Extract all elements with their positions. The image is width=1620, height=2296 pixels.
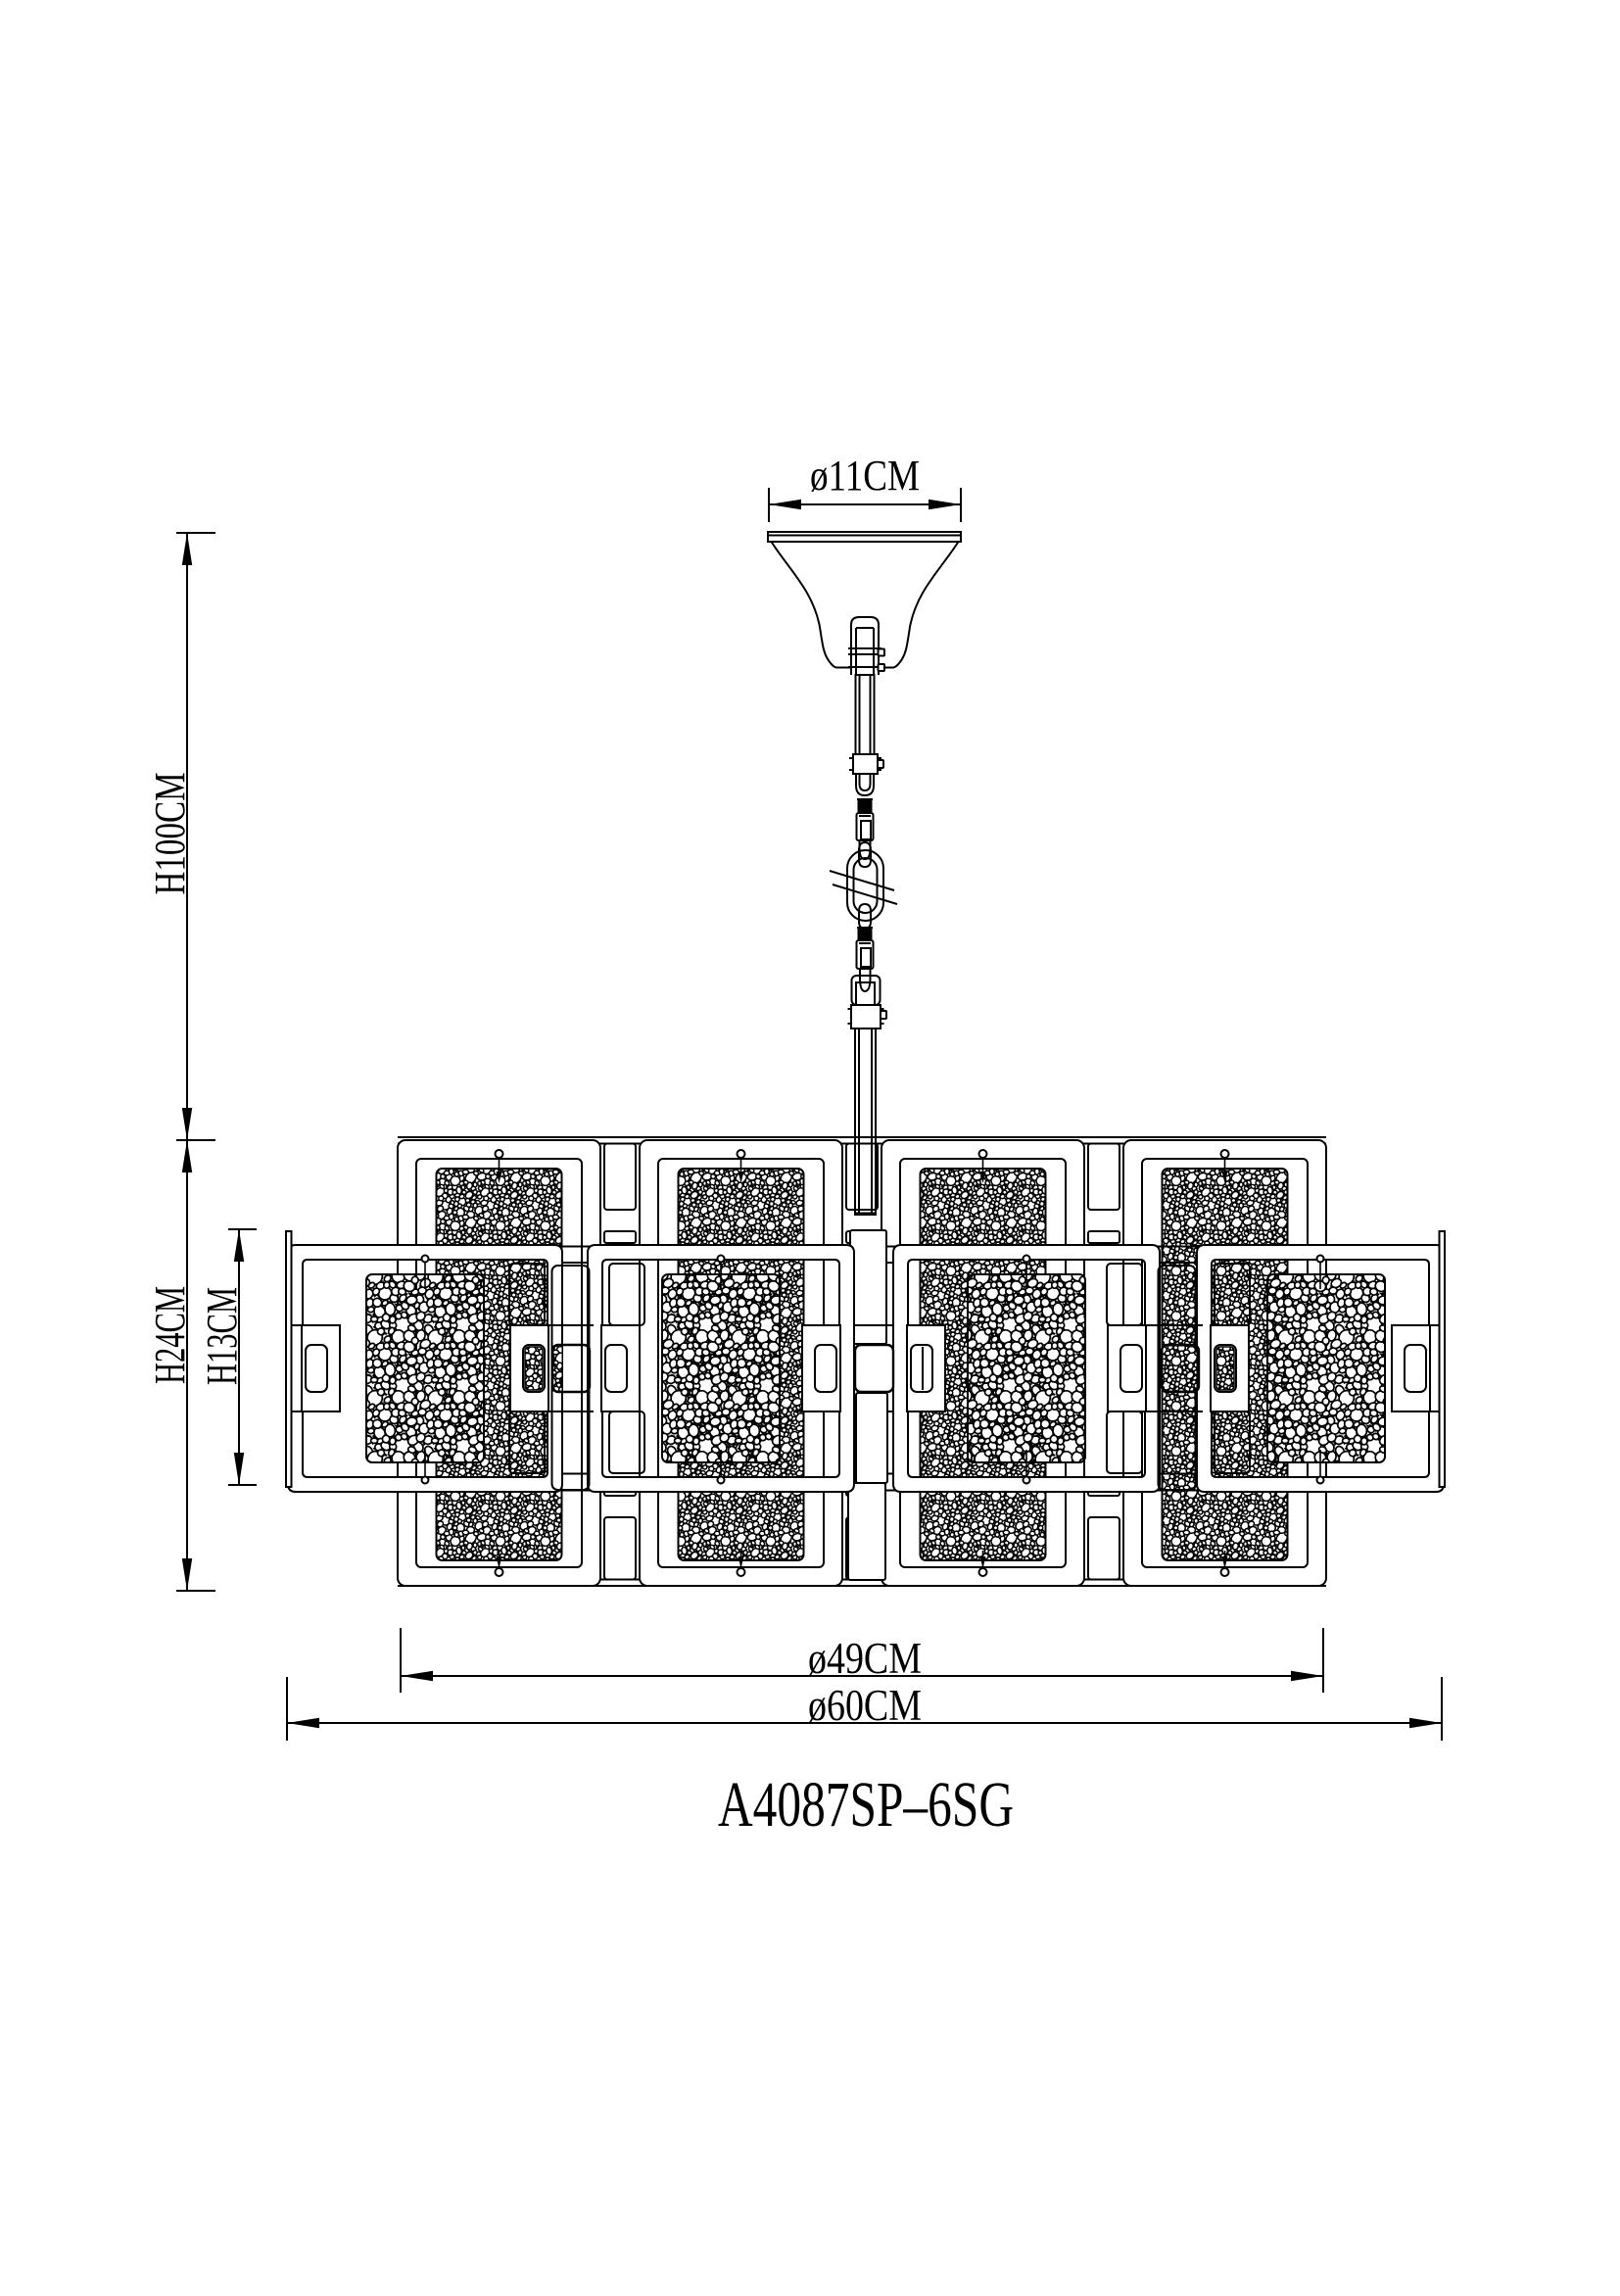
- svg-text:A4087SP–6SG: A4087SP–6SG: [718, 1769, 1014, 1841]
- svg-text:ø11CM: ø11CM: [810, 452, 920, 500]
